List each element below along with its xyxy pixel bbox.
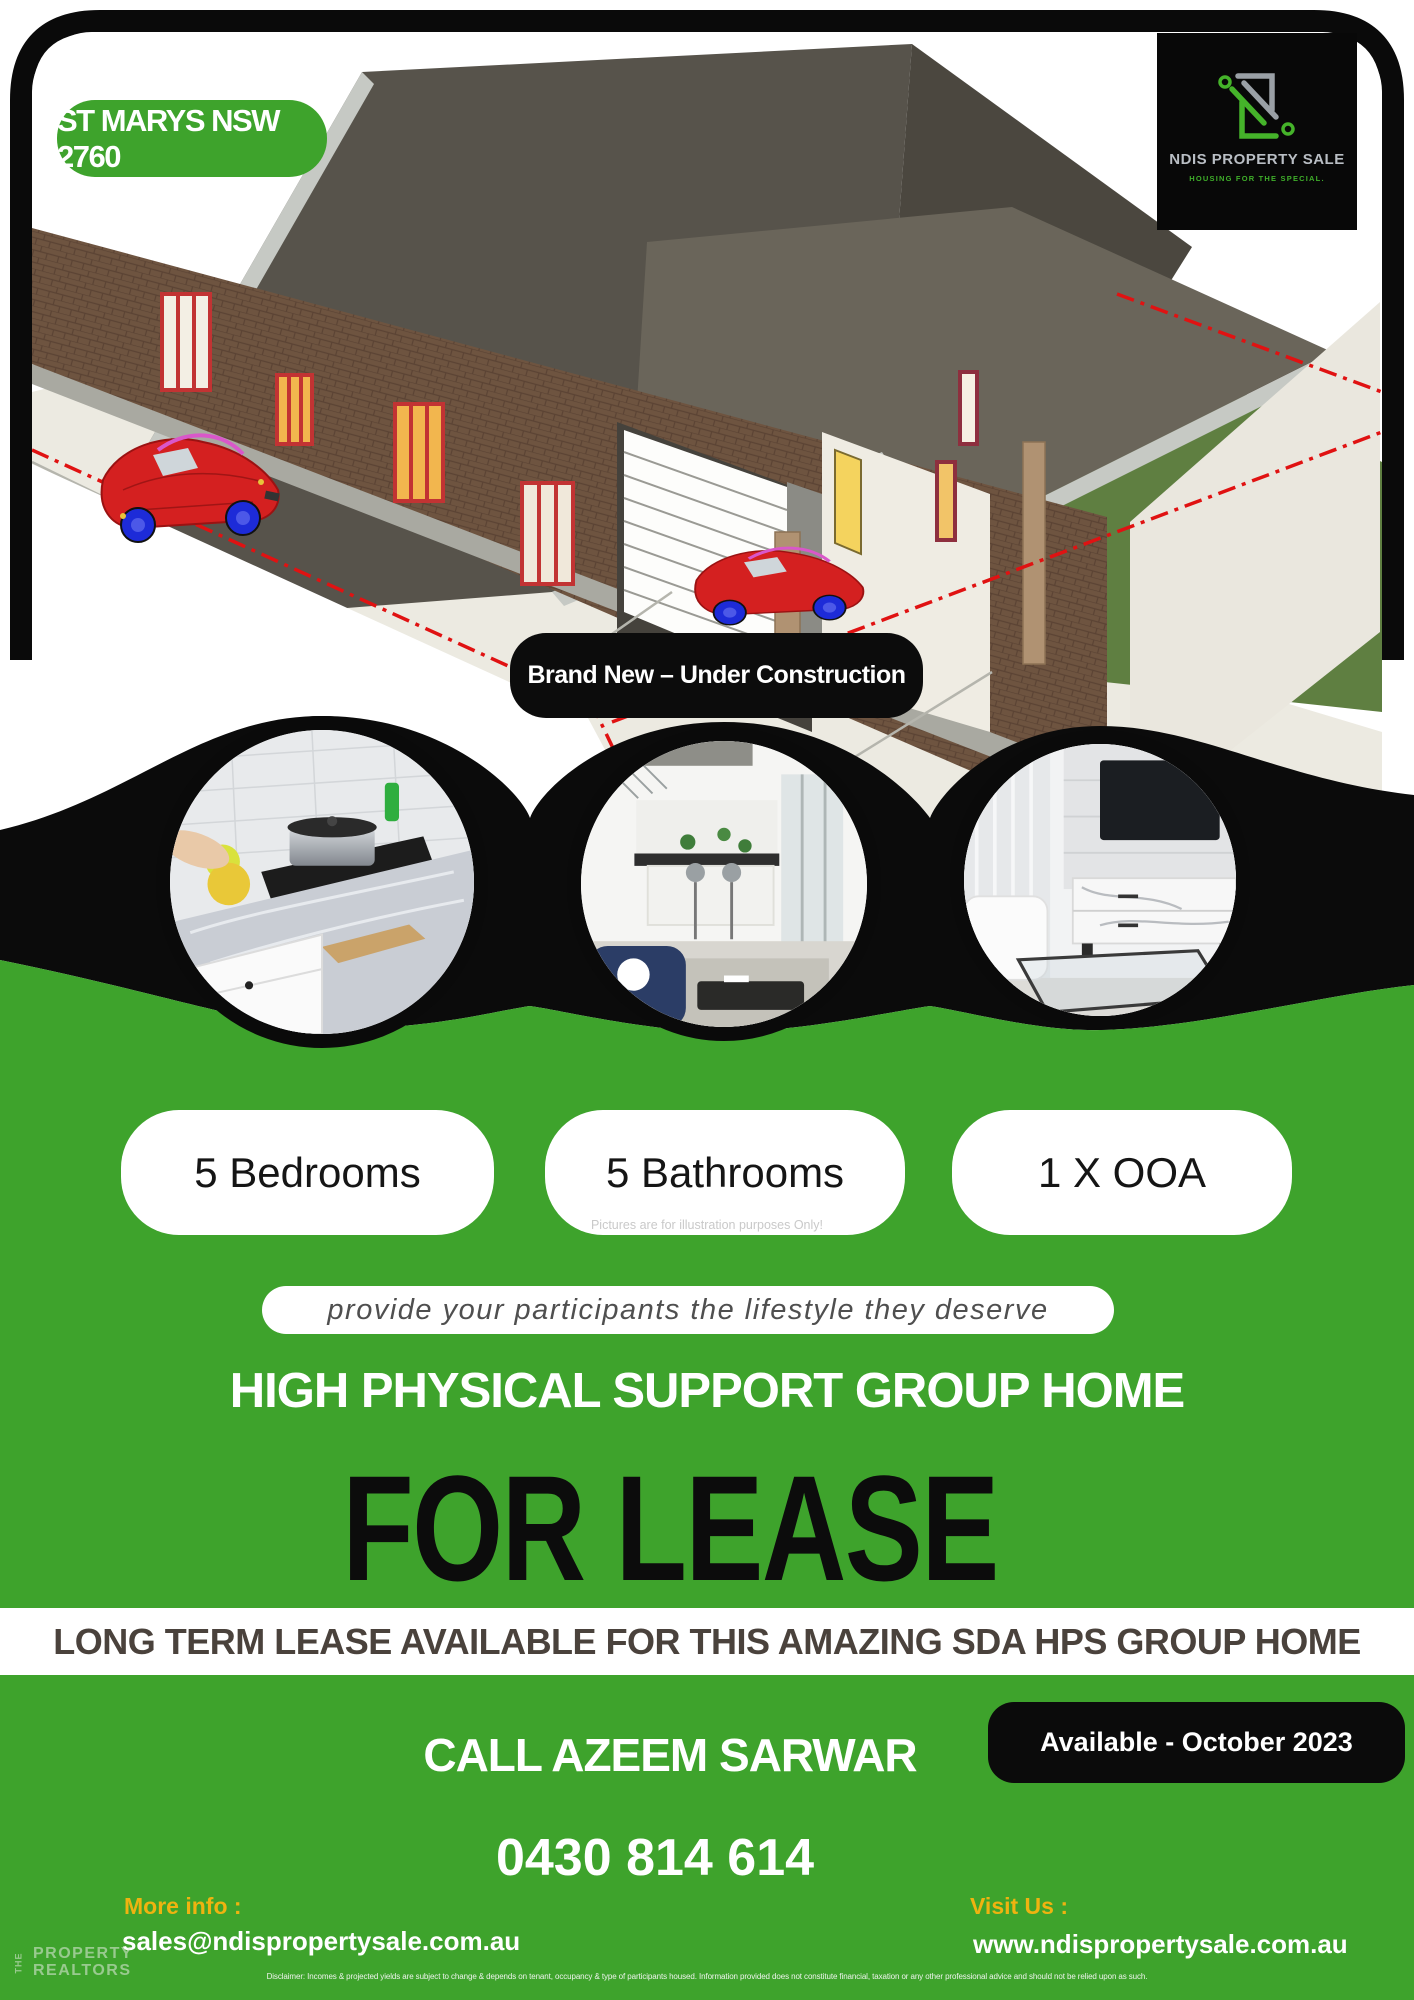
- tagline-text: provide your participants the lifestyle …: [327, 1294, 1048, 1327]
- availability-badge: Available - October 2023: [988, 1702, 1405, 1783]
- photos-caption: Pictures are for illustration purposes O…: [0, 1218, 1414, 1232]
- location-badge-label: ST MARYS NSW 2760: [57, 103, 327, 175]
- construction-badge: Brand New – Under Construction: [510, 633, 923, 718]
- feature-bedrooms-label: 5 Bedrooms: [194, 1149, 420, 1197]
- feature-bedrooms: 5 Bedrooms: [121, 1110, 494, 1235]
- feature-ooa: 1 X OOA: [952, 1110, 1292, 1235]
- subtitle-text: LONG TERM LEASE AVAILABLE FOR THIS AMAZI…: [53, 1621, 1361, 1663]
- feature-bathrooms-label: 5 Bathrooms: [606, 1149, 844, 1197]
- porch-column-2: [1023, 442, 1045, 664]
- for-lease-title: FOR LEASE: [119, 1453, 1222, 1603]
- availability-badge-label: Available - October 2023: [1040, 1727, 1353, 1758]
- visit-us-label: Visit Us :: [970, 1893, 1068, 1920]
- ndis-logo-box: NDIS PROPERTY SALE HOUSING FOR THE SPECI…: [1157, 33, 1357, 230]
- feature-bathrooms: 5 Bathrooms: [545, 1110, 905, 1235]
- realtor-logo-the: THE: [14, 1952, 24, 1973]
- construction-badge-label: Brand New – Under Construction: [527, 661, 905, 690]
- subtitle-band: LONG TERM LEASE AVAILABLE FOR THIS AMAZI…: [0, 1608, 1414, 1675]
- photo-open-plan: [567, 727, 881, 1041]
- disclaimer-text: Disclaimer: Incomes & projected yields a…: [0, 1972, 1414, 1981]
- ndis-logo-name: NDIS PROPERTY SALE: [1169, 151, 1344, 168]
- realtor-logo-property: PROPERTY: [33, 1946, 133, 1963]
- email-link[interactable]: sales@ndispropertysale.com.au: [122, 1926, 520, 1957]
- front-door: [835, 450, 861, 554]
- support-heading: HIGH PHYSICAL SUPPORT GROUP HOME: [0, 1363, 1414, 1419]
- phone-number[interactable]: 0430 814 614: [0, 1828, 1362, 1888]
- ndis-logo-tagline: HOUSING FOR THE SPECIAL.: [1189, 174, 1324, 183]
- ndis-logo-icon: [1212, 71, 1302, 141]
- property-flyer: ST MARYS NSW 2760 NDIS PROPERTY SALE HOU…: [0, 0, 1414, 2000]
- more-info-label: More info :: [124, 1893, 242, 1920]
- location-badge: ST MARYS NSW 2760: [57, 100, 327, 177]
- photo-living-room: [950, 730, 1250, 1030]
- tagline-pill: provide your participants the lifestyle …: [262, 1286, 1114, 1334]
- photo-kitchen: [156, 716, 488, 1048]
- website-link[interactable]: www.ndispropertysale.com.au: [973, 1929, 1348, 1960]
- feature-ooa-label: 1 X OOA: [1038, 1149, 1206, 1197]
